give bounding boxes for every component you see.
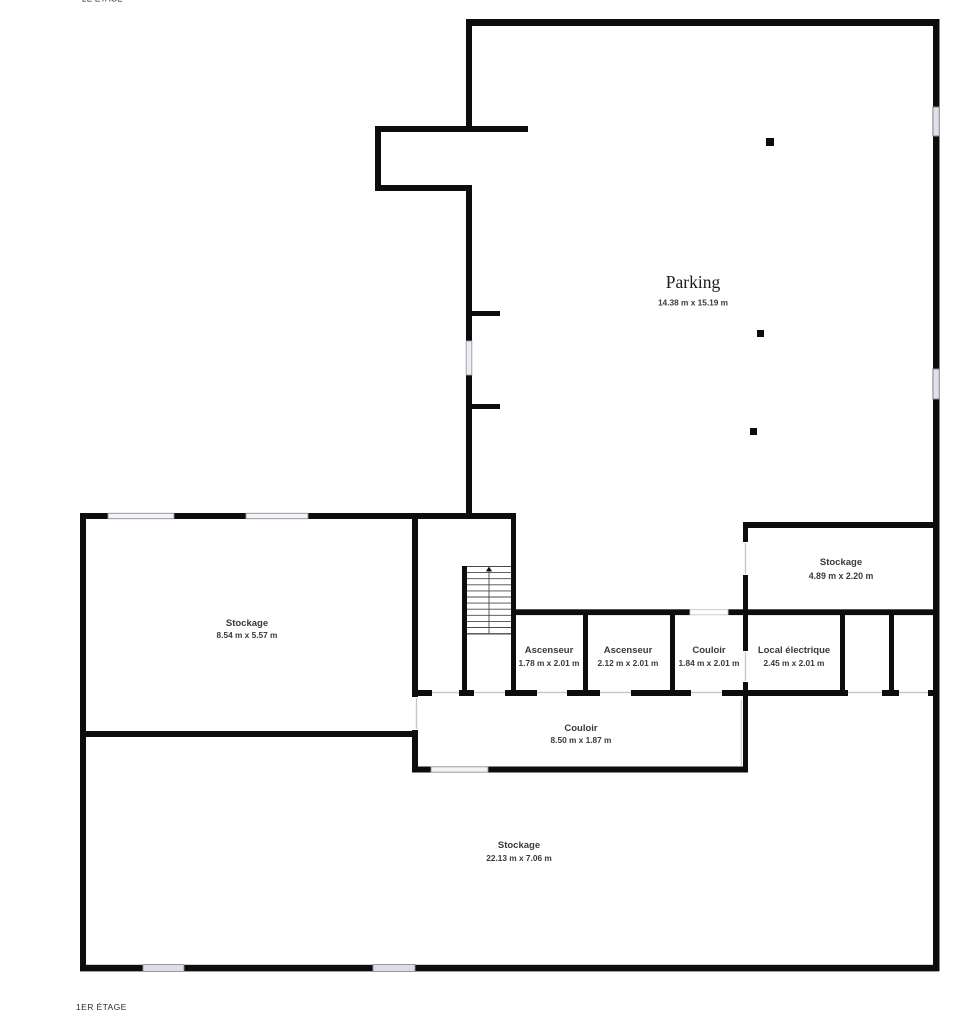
svg-text:Stockage: Stockage bbox=[820, 557, 862, 568]
svg-text:8.54 m x 5.57 m: 8.54 m x 5.57 m bbox=[217, 630, 278, 640]
svg-text:Ascenseur: Ascenseur bbox=[604, 645, 653, 656]
svg-text:22.13 m x 7.06 m: 22.13 m x 7.06 m bbox=[486, 853, 552, 863]
svg-text:Stockage: Stockage bbox=[498, 840, 540, 851]
svg-text:14.38 m x 15.19 m: 14.38 m x 15.19 m bbox=[658, 298, 728, 308]
svg-text:Parking: Parking bbox=[666, 272, 721, 292]
svg-text:1ER ÉTAGE: 1ER ÉTAGE bbox=[76, 1002, 127, 1012]
svg-text:Local électrique: Local électrique bbox=[758, 645, 830, 656]
svg-text:Couloir: Couloir bbox=[692, 645, 726, 656]
svg-text:4.89 m x 2.20 m: 4.89 m x 2.20 m bbox=[809, 571, 874, 581]
svg-text:Couloir: Couloir bbox=[564, 723, 598, 734]
svg-text:1.78 m x 2.01 m: 1.78 m x 2.01 m bbox=[519, 658, 580, 668]
svg-text:2.45 m x 2.01 m: 2.45 m x 2.01 m bbox=[764, 658, 825, 668]
svg-text:Stockage: Stockage bbox=[226, 618, 268, 629]
svg-text:1.84 m x 2.01 m: 1.84 m x 2.01 m bbox=[679, 658, 740, 668]
svg-text:8.50 m x 1.87 m: 8.50 m x 1.87 m bbox=[551, 735, 612, 745]
svg-text:Ascenseur: Ascenseur bbox=[525, 645, 574, 656]
svg-text:2.12 m x 2.01 m: 2.12 m x 2.01 m bbox=[598, 658, 659, 668]
svg-text:2E ÉTAGE: 2E ÉTAGE bbox=[82, 0, 123, 3]
